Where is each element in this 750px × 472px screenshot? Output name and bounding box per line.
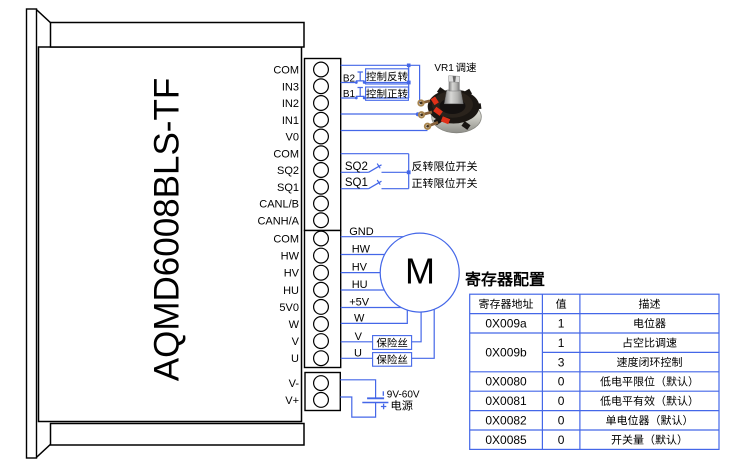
svg-text:U: U [291, 353, 299, 365]
svg-text:HV: HV [352, 262, 368, 274]
svg-text:CANL/B: CANL/B [259, 199, 299, 211]
svg-text:V: V [292, 336, 300, 348]
svg-text:0: 0 [558, 394, 565, 408]
svg-text:IN3: IN3 [282, 81, 299, 93]
svg-text:+5V: +5V [349, 297, 370, 309]
svg-text:IN2: IN2 [282, 98, 299, 110]
svg-text:SQ2: SQ2 [277, 165, 299, 177]
svg-text:U: U [354, 347, 362, 359]
svg-text:W: W [289, 319, 300, 331]
svg-text:0X0085: 0X0085 [485, 433, 527, 447]
svg-text:0X009a: 0X009a [485, 317, 527, 331]
svg-text:HU: HU [352, 279, 368, 291]
svg-text:V-: V- [289, 378, 300, 390]
svg-text:0X009b: 0X009b [485, 346, 527, 360]
svg-text:B1: B1 [343, 89, 356, 100]
svg-text:1: 1 [558, 317, 565, 331]
svg-text:HW: HW [281, 251, 300, 263]
svg-text:M: M [405, 250, 435, 291]
svg-text:HV: HV [284, 268, 300, 280]
svg-text:HU: HU [283, 285, 299, 297]
svg-text:COM: COM [273, 148, 299, 160]
svg-text:V: V [355, 331, 363, 343]
svg-text:CANH/A: CANH/A [257, 215, 299, 227]
svg-text:V0: V0 [286, 132, 299, 144]
svg-text:W: W [354, 313, 365, 325]
svg-text:IN1: IN1 [282, 115, 299, 127]
svg-text:SQ1: SQ1 [345, 177, 368, 189]
svg-text:0: 0 [558, 414, 565, 428]
svg-text:AQMD6008BLS-TF: AQMD6008BLS-TF [148, 78, 187, 381]
svg-text:0X0081: 0X0081 [485, 394, 527, 408]
svg-text:SQ2: SQ2 [345, 161, 368, 173]
svg-text:0: 0 [558, 375, 565, 389]
svg-text:9V-60V: 9V-60V [387, 389, 420, 400]
svg-text:0: 0 [558, 433, 565, 447]
svg-text:GND: GND [349, 226, 374, 238]
svg-text:COM: COM [273, 65, 299, 77]
svg-text:B2: B2 [343, 73, 356, 84]
svg-text:V+: V+ [285, 395, 299, 407]
svg-text:COM: COM [273, 234, 299, 246]
svg-text:0X0082: 0X0082 [485, 414, 527, 428]
svg-text:0X0080: 0X0080 [485, 375, 527, 389]
svg-text:VR1: VR1 [434, 63, 454, 74]
svg-text:3: 3 [558, 355, 565, 369]
svg-text:5V0: 5V0 [279, 302, 299, 314]
svg-text:HW: HW [352, 244, 371, 256]
svg-text:1: 1 [558, 336, 565, 350]
svg-text:SQ1: SQ1 [277, 182, 299, 194]
